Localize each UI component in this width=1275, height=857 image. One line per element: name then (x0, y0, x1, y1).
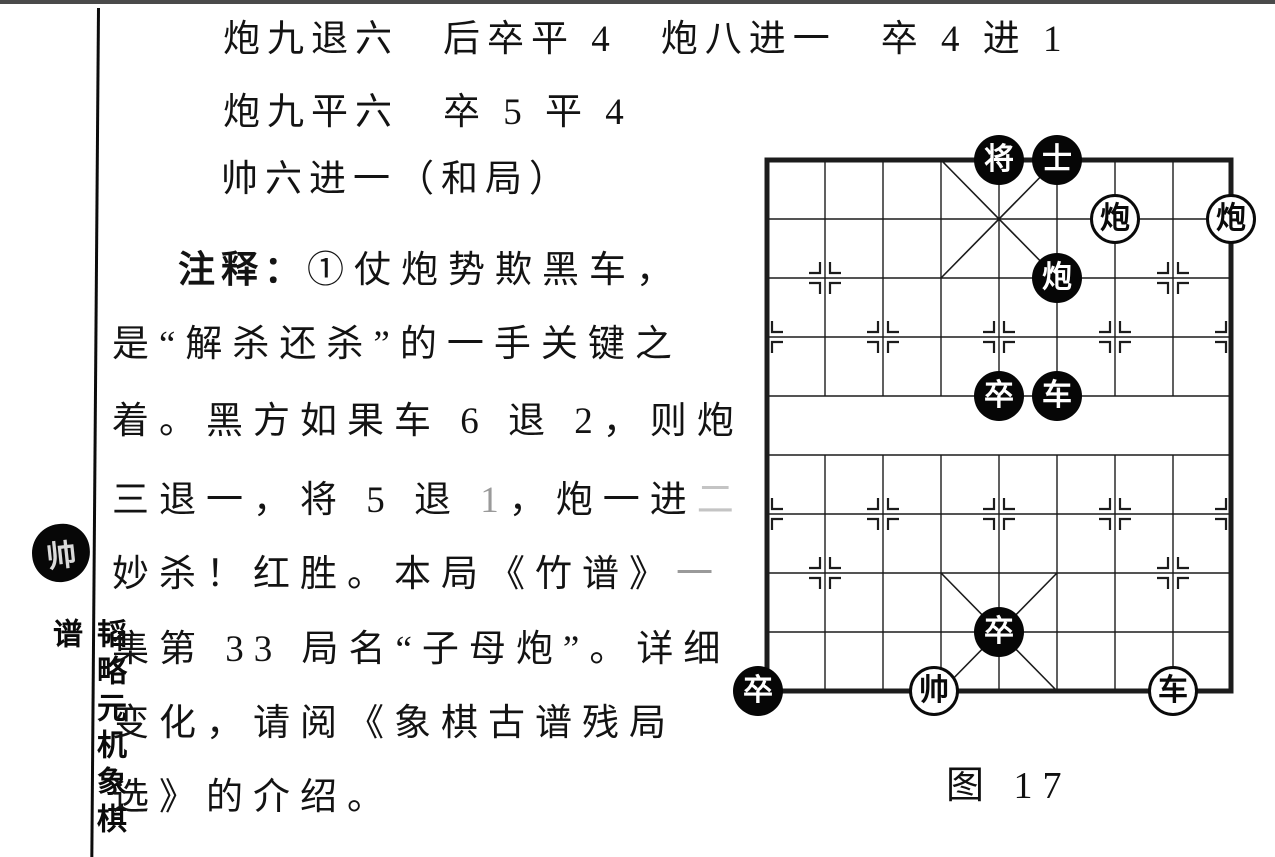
commentary-line-4: 三退一，将 5 退 1，炮一进二 (112, 479, 744, 523)
scan-edge (0, 0, 1275, 4)
commentary-line-3: 着。黑方如果车 6 退 2，则炮 (112, 400, 744, 444)
board-piece-red: 帅 (909, 666, 959, 716)
commentary-line-4-c: ，炮一进 (509, 480, 697, 521)
piece-label: 炮 (1216, 204, 1246, 234)
piece-label: 将 (984, 145, 1014, 175)
commentary-line-5-a: 妙杀！红胜。本局《竹谱》 (112, 554, 676, 595)
move-line-1: 炮九退六 后卒平 4 炮八进一 卒 4 进 1 (223, 18, 1069, 62)
piece-label: 炮 (1100, 204, 1130, 234)
piece-label: 帅 (919, 676, 949, 706)
piece-label: 士 (1042, 145, 1072, 175)
commentary-line-1: 注释：①仗炮势欺黑车， (178, 248, 683, 293)
commentary-line-4-faint-char: 二 (697, 480, 744, 521)
board-piece-black: 炮 (1032, 253, 1082, 303)
board-piece-black: 卒 (733, 666, 783, 716)
commentary-line-5: 妙杀！红胜。本局《竹谱》一 (112, 553, 723, 597)
commentary-line-6: 集第 33 局名“子母炮”。详细 (112, 628, 730, 672)
commentary-line-8: 选》的介绍。 (112, 776, 394, 820)
commentary-line-7: 变化，请阅《象棋古谱残局 (112, 702, 676, 746)
piece-label: 车 (1158, 676, 1188, 706)
seal-character: 帅 (44, 530, 78, 577)
board-piece-red: 炮 (1090, 194, 1140, 244)
piece-label: 卒 (984, 617, 1014, 647)
book-page: 帅 韬略元机象棋谱 炮九退六 后卒平 4 炮八进一 卒 4 进 1 炮九平六 卒… (0, 0, 1275, 857)
move-line-2: 炮九平六 卒 5 平 4 (223, 91, 631, 135)
piece-label: 车 (1042, 381, 1072, 411)
board-piece-black: 将 (974, 135, 1024, 185)
piece-label: 卒 (984, 381, 1014, 411)
xiangqi-board: 将士炮炮炮卒车卒卒帅车 (738, 131, 1248, 731)
commentary-line-2: 是“解杀还杀”的一手关键之 (112, 323, 682, 367)
board-piece-black: 卒 (974, 607, 1024, 657)
board-piece-black: 士 (1032, 135, 1082, 185)
commentary-line-4-faint-digit: 1 (480, 480, 509, 521)
board-piece-black: 卒 (974, 371, 1024, 421)
commentary-line-4-a: 三退一，将 5 退 (112, 480, 480, 521)
move-line-3: 帅六进一（和局） (221, 158, 573, 202)
commentary-line-5-faint-char: 一 (676, 554, 723, 595)
piece-label: 卒 (743, 676, 773, 706)
board-piece-black: 车 (1032, 371, 1082, 421)
figure-caption: 图 17 (946, 754, 1072, 809)
board-piece-red: 车 (1148, 666, 1198, 716)
commentary-label: 注释： (178, 249, 307, 290)
piece-label: 炮 (1042, 263, 1072, 293)
board-piece-red: 炮 (1206, 194, 1256, 244)
commentary-line-1-text: ①仗炮势欺黑车， (307, 250, 683, 291)
seal-stamp: 帅 (29, 521, 93, 585)
